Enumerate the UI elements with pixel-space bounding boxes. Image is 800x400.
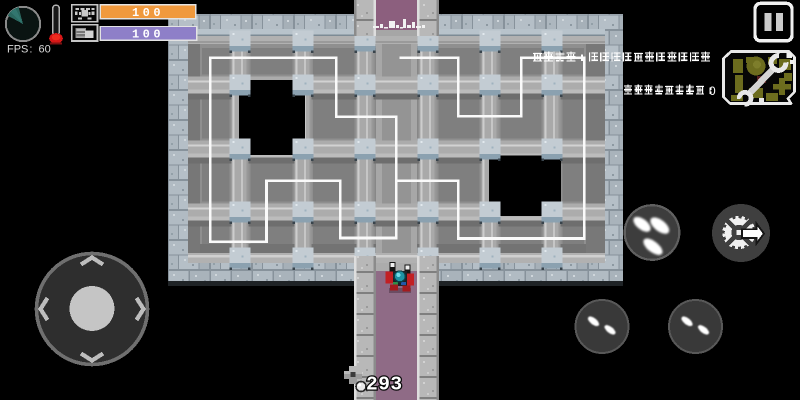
svg-text:100: 100	[132, 6, 164, 20]
svg-text:0: 0	[709, 84, 716, 98]
svg-text:293: 293	[366, 374, 403, 396]
svg-text:FPS:60: FPS:60	[7, 44, 51, 56]
svg-text:100: 100	[132, 28, 164, 42]
